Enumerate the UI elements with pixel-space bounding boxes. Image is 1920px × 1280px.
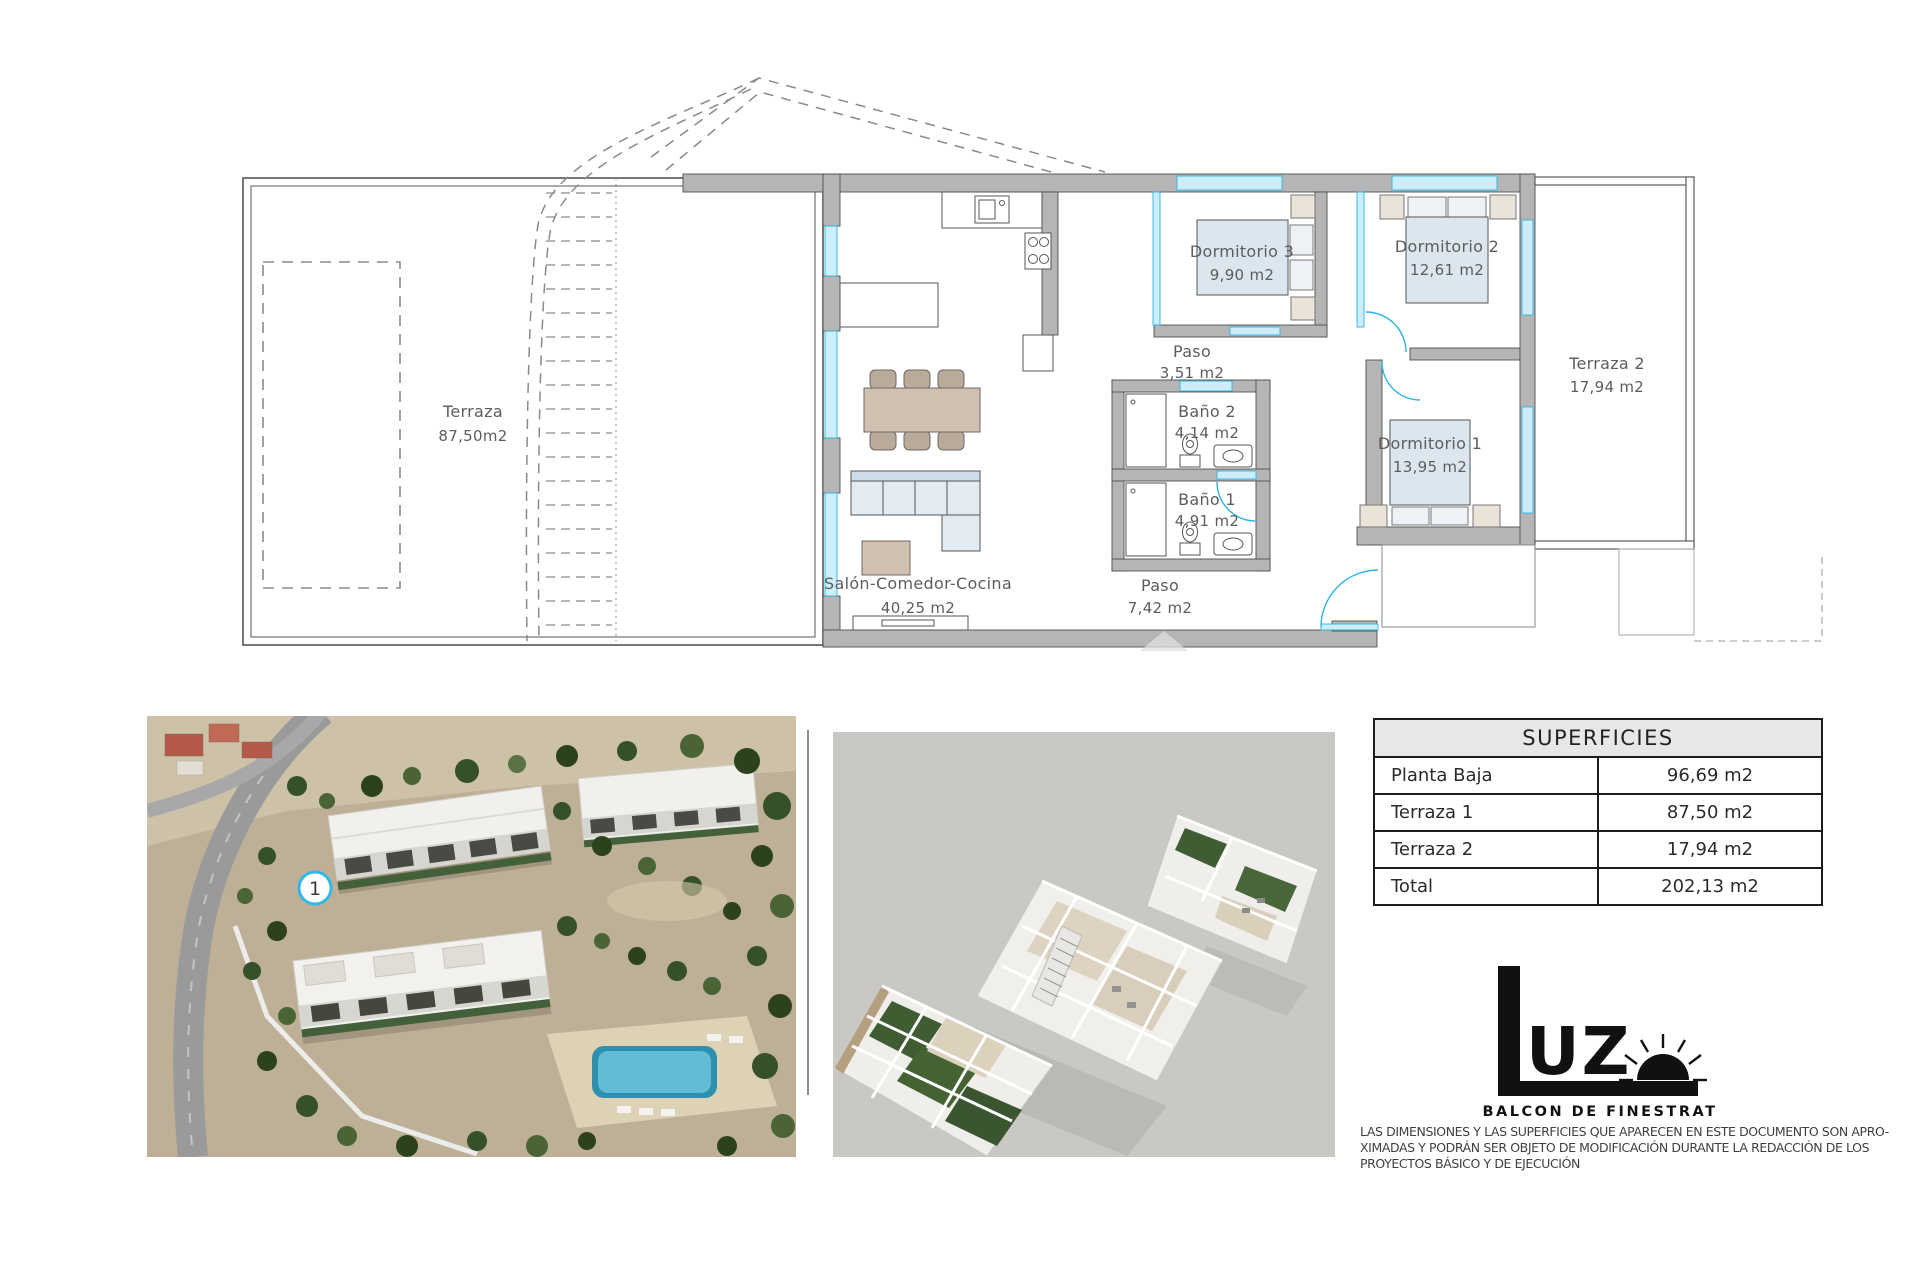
- svg-text:13,95 m2: 13,95 m2: [1393, 458, 1467, 476]
- aerial-site-render: 1: [147, 716, 796, 1157]
- logo-uz-text: UZ: [1526, 1013, 1631, 1090]
- svg-text:4,14 m2: 4,14 m2: [1175, 424, 1239, 442]
- svg-text:12,61 m2: 12,61 m2: [1410, 261, 1484, 279]
- row-label: Terraza 2: [1374, 831, 1598, 868]
- svg-text:1: 1: [309, 878, 321, 900]
- svg-text:Dormitorio 2: Dormitorio 2: [1395, 237, 1499, 256]
- svg-text:Paso: Paso: [1173, 342, 1211, 361]
- sun-icon: [1619, 1034, 1707, 1080]
- row-label: Terraza 1: [1374, 794, 1598, 831]
- sand-patch: [607, 881, 727, 921]
- room-label-terraza2: Terraza 2 17,94 m2: [1568, 354, 1645, 396]
- svg-text:Terraza 2: Terraza 2: [1568, 354, 1645, 373]
- svg-text:4,91 m2: 4,91 m2: [1175, 512, 1239, 530]
- table-row: Total 202,13 m2: [1374, 868, 1822, 905]
- svg-text:Dormitorio 1: Dormitorio 1: [1378, 434, 1482, 453]
- superficies-table: SUPERFICIES Planta Baja 96,69 m2 Terraza…: [1373, 718, 1823, 906]
- pool-dashed-outline: [263, 262, 400, 588]
- row-label: Planta Baja: [1374, 757, 1598, 794]
- table-title: SUPERFICIES: [1374, 719, 1822, 757]
- dining-set: [864, 370, 980, 450]
- stairs-dashed-treads: [546, 193, 612, 625]
- boundary-dashes: [1619, 549, 1822, 641]
- svg-text:Salón-Comedor-Cocina: Salón-Comedor-Cocina: [824, 574, 1012, 593]
- row-label: Total: [1374, 868, 1598, 905]
- svg-text:9,90 m2: 9,90 m2: [1210, 266, 1274, 284]
- table-row: Planta Baja 96,69 m2: [1374, 757, 1822, 794]
- row-value: 17,94 m2: [1598, 831, 1822, 868]
- terrace-outline: [243, 178, 823, 645]
- table-row: Terraza 2 17,94 m2: [1374, 831, 1822, 868]
- row-value: 87,50 m2: [1598, 794, 1822, 831]
- brochure-page: Terraza 87,50m2: [0, 0, 1920, 1280]
- svg-text:87,50m2: 87,50m2: [438, 427, 507, 445]
- svg-text:17,94 m2: 17,94 m2: [1570, 378, 1644, 396]
- disclaimer-line: PROYECTOS BÁSICO Y DE EJECUCIÓN: [1360, 1156, 1870, 1172]
- room-label-terraza1: Terraza 87,50m2: [438, 402, 507, 445]
- svg-text:40,25 m2: 40,25 m2: [881, 599, 955, 617]
- svg-text:7,42 m2: 7,42 m2: [1128, 599, 1192, 617]
- luz-logo: UZ BALCON DE FINESTRAT: [1480, 958, 1720, 1123]
- svg-text:3,51 m2: 3,51 m2: [1160, 364, 1224, 382]
- svg-text:Terraza: Terraza: [442, 402, 503, 421]
- disclaimer: LAS DIMENSIONES Y LAS SUPERFICIES QUE AP…: [1360, 1124, 1870, 1172]
- unit-1-badge: 1: [299, 872, 331, 904]
- image-divider: [807, 730, 809, 1095]
- svg-text:Paso: Paso: [1141, 576, 1179, 595]
- disclaimer-line: LAS DIMENSIONES Y LAS SUPERFICIES QUE AP…: [1360, 1124, 1870, 1140]
- svg-text:Dormitorio 3: Dormitorio 3: [1190, 242, 1294, 261]
- exploded-axon-render: [827, 716, 1335, 1161]
- disclaimer-line: XIMADAS Y PODRÁN SER OBJETO DE MODIFICAC…: [1360, 1140, 1870, 1156]
- svg-text:Baño 2: Baño 2: [1178, 402, 1236, 421]
- table-row: Terraza 1 87,50 m2: [1374, 794, 1822, 831]
- row-value: 202,13 m2: [1598, 868, 1822, 905]
- row-value: 96,69 m2: [1598, 757, 1822, 794]
- logo-subtitle: BALCON DE FINESTRAT: [1483, 1104, 1718, 1120]
- floor-plan: Terraza 87,50m2: [242, 75, 1832, 665]
- svg-text:Baño 1: Baño 1: [1178, 490, 1236, 509]
